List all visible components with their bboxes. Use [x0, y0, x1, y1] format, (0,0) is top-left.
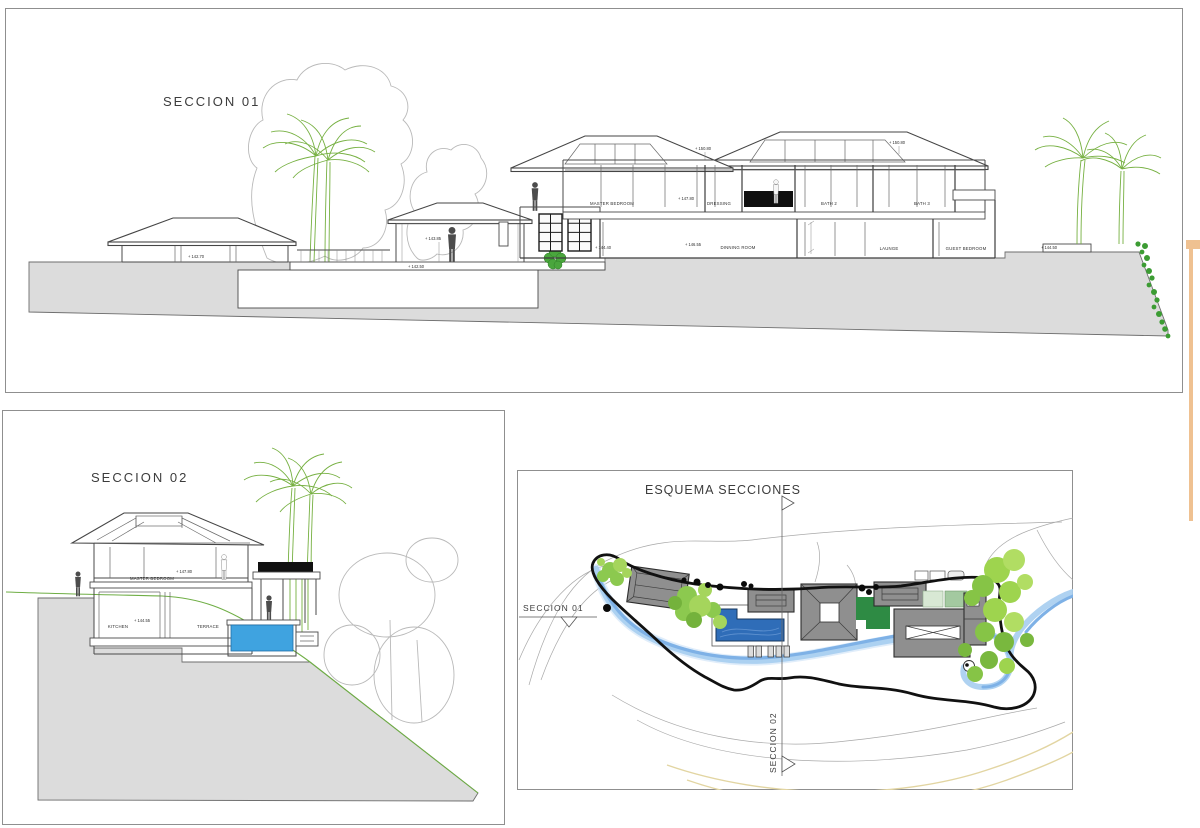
- elevation-label: + 147.80: [678, 196, 695, 201]
- elevation-label: + 146.55: [685, 242, 702, 247]
- room-label: DINNING ROOM: [720, 245, 755, 250]
- building-roof-x: [801, 584, 857, 640]
- elevation-label: + 144.50: [1041, 245, 1058, 250]
- section01-marker: SECCION 01: [519, 603, 597, 627]
- room-label: DRESSING: [707, 201, 732, 206]
- adjacent-sheet-frame: [1186, 240, 1200, 249]
- architectural-drawing-sheet: { "panels": { "seccion01": { "title": "S…: [0, 0, 1200, 828]
- elevation-label: + 150.80: [889, 140, 906, 145]
- elevation-label: + 144.55: [134, 618, 151, 623]
- elevation-label: + 142.50: [408, 264, 425, 269]
- palm-fronds: [263, 114, 375, 178]
- elevation-label: + 143.85: [425, 236, 442, 241]
- person-figure: [448, 227, 456, 262]
- seccion02-panel: SECCION 02 MASTER BEDROOM + 147.80: [2, 410, 505, 825]
- left-house: + 142.70: [108, 218, 296, 262]
- building-roof: [748, 589, 794, 612]
- room-label: LAUNGE: [880, 246, 899, 251]
- roof-right: [701, 132, 988, 166]
- person-figure: [266, 595, 272, 621]
- seccion02-title: SECCION 02: [91, 470, 188, 485]
- background-outline-tree: [248, 63, 486, 263]
- room-label: MASTER BEDROOM: [130, 576, 174, 581]
- room-label: MASTER BEDROOM: [590, 201, 634, 206]
- main-house: + 150.80 + 150.80 + 144.40 MASTER BEDROO…: [511, 132, 995, 258]
- room-label: BATH 3: [914, 201, 930, 206]
- roof-left: [511, 136, 733, 168]
- person-figure: [221, 555, 227, 580]
- dark-opening: [744, 191, 793, 207]
- room-label: TERRACE: [197, 624, 219, 629]
- elevation-label: + 147.80: [176, 569, 193, 574]
- room-label: KITCHEN: [108, 624, 128, 629]
- pool-pavilion: + 143.85: [388, 203, 532, 262]
- person-figure: [75, 572, 81, 597]
- planting-bed: [923, 591, 943, 607]
- pergola-pool: [227, 562, 320, 656]
- section01-label: SECCION 01: [523, 603, 584, 613]
- elevation-label: + 142.70: [188, 254, 205, 259]
- tan-contours: [667, 732, 1073, 790]
- seccion01-panel: SECCION 01 + 142.70 + 142.50: [5, 8, 1183, 393]
- pergola-canopy: [258, 562, 313, 572]
- room-label: GUEST BEDROOM: [946, 246, 987, 251]
- elevation-label: + 150.80: [695, 146, 712, 151]
- section02-label: SECCION 02: [768, 712, 778, 773]
- room-label: BATH 2: [821, 201, 837, 206]
- esquema-title: ESQUEMA SECCIONES: [645, 483, 801, 497]
- car: [915, 571, 928, 580]
- palm-trees: [244, 448, 352, 575]
- foundation-outline: [238, 270, 538, 308]
- swimming-pool: [231, 625, 293, 651]
- roof: [72, 513, 264, 545]
- flag-icon: [782, 496, 794, 510]
- adjacent-sheet-frame: [1189, 249, 1193, 521]
- esquema-secciones-panel: ESQUEMA SECCIONES: [517, 470, 1073, 790]
- elevation-label: + 144.40: [595, 245, 612, 250]
- palm-trees-right: [1035, 118, 1161, 244]
- seccion01-title: SECCION 01: [163, 94, 260, 109]
